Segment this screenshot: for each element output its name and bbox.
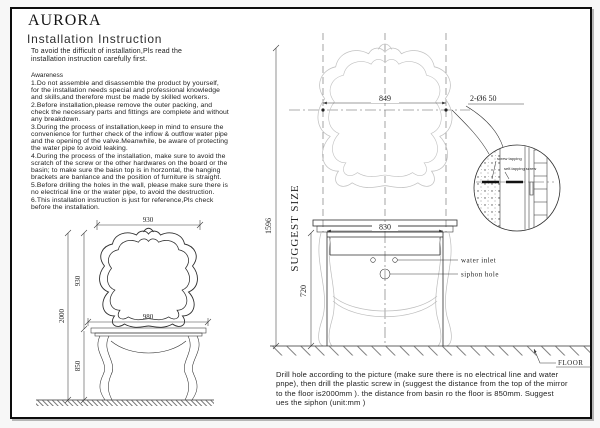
bottom-note: Drill hole according to the picture (mak…	[276, 370, 568, 408]
brand-logo: AURORA	[28, 12, 102, 30]
awareness-item-6: 6.This installation instruction is just …	[31, 197, 229, 211]
page-title: Installation Instruction	[27, 32, 162, 46]
awareness-item-2: 2.Before installation,please remove the …	[31, 102, 229, 123]
awareness-item-3: 3.During the process of installation,kee…	[31, 124, 229, 152]
awareness-item-5: 5.Before drilling the holes in the wall,…	[31, 182, 229, 196]
document-canvas: AURORA Installation Instruction To avoid…	[0, 0, 600, 428]
awareness-item-1: 1.Do not assemble and disassemble the pr…	[31, 80, 229, 101]
intro-text: To avoid the difficult of installation,P…	[31, 48, 219, 63]
awareness-list: 1.Do not assemble and disassemble the pr…	[31, 80, 229, 212]
page-sheet: AURORA Installation Instruction To avoid…	[10, 7, 592, 419]
awareness-item-4: 4.During the process of the installation…	[31, 153, 229, 181]
awareness-heading: Awareness	[31, 72, 63, 79]
